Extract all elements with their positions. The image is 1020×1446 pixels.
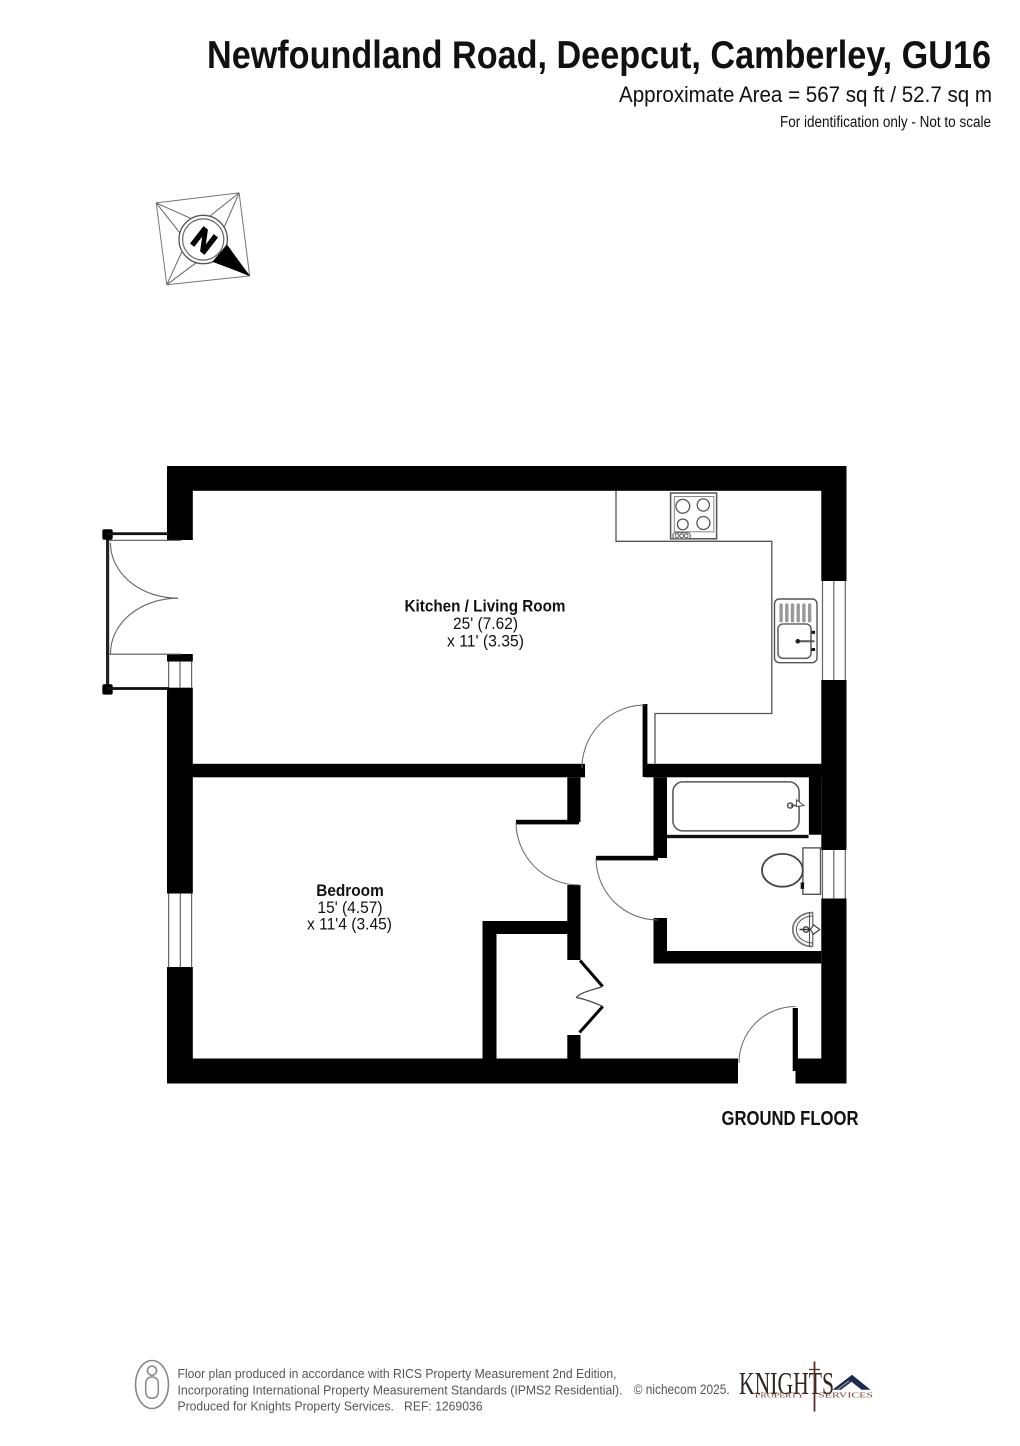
svg-text:Produced for Knights Property: Produced for Knights Property Services. …	[178, 1399, 483, 1414]
svg-text:© nichecom 2025.: © nichecom 2025.	[634, 1382, 730, 1397]
svg-text:25' (7.62): 25' (7.62)	[453, 614, 518, 633]
svg-text:Newfoundland Road, Deepcut, Ca: Newfoundland Road, Deepcut, Camberley, G…	[207, 34, 991, 77]
svg-text:Floor plan produced in accorda: Floor plan produced in accordance with R…	[178, 1366, 617, 1381]
svg-text:x 11'4 (3.45): x 11'4 (3.45)	[307, 915, 392, 934]
svg-text:GROUND FLOOR: GROUND FLOOR	[722, 1108, 859, 1130]
svg-text:PROPERTY: PROPERTY	[755, 1391, 805, 1400]
svg-text:Incorporating International Pr: Incorporating International Property Mea…	[178, 1382, 623, 1397]
svg-text:For identification only - Not: For identification only - Not to scale	[780, 114, 991, 131]
svg-text:x 11' (3.35): x 11' (3.35)	[447, 632, 524, 651]
svg-text:Kitchen / Living Room: Kitchen / Living Room	[405, 597, 566, 616]
svg-text:Approximate Area = 567 sq ft /: Approximate Area = 567 sq ft / 52.7 sq m	[619, 82, 992, 107]
svg-text:SERVICES: SERVICES	[818, 1391, 873, 1400]
